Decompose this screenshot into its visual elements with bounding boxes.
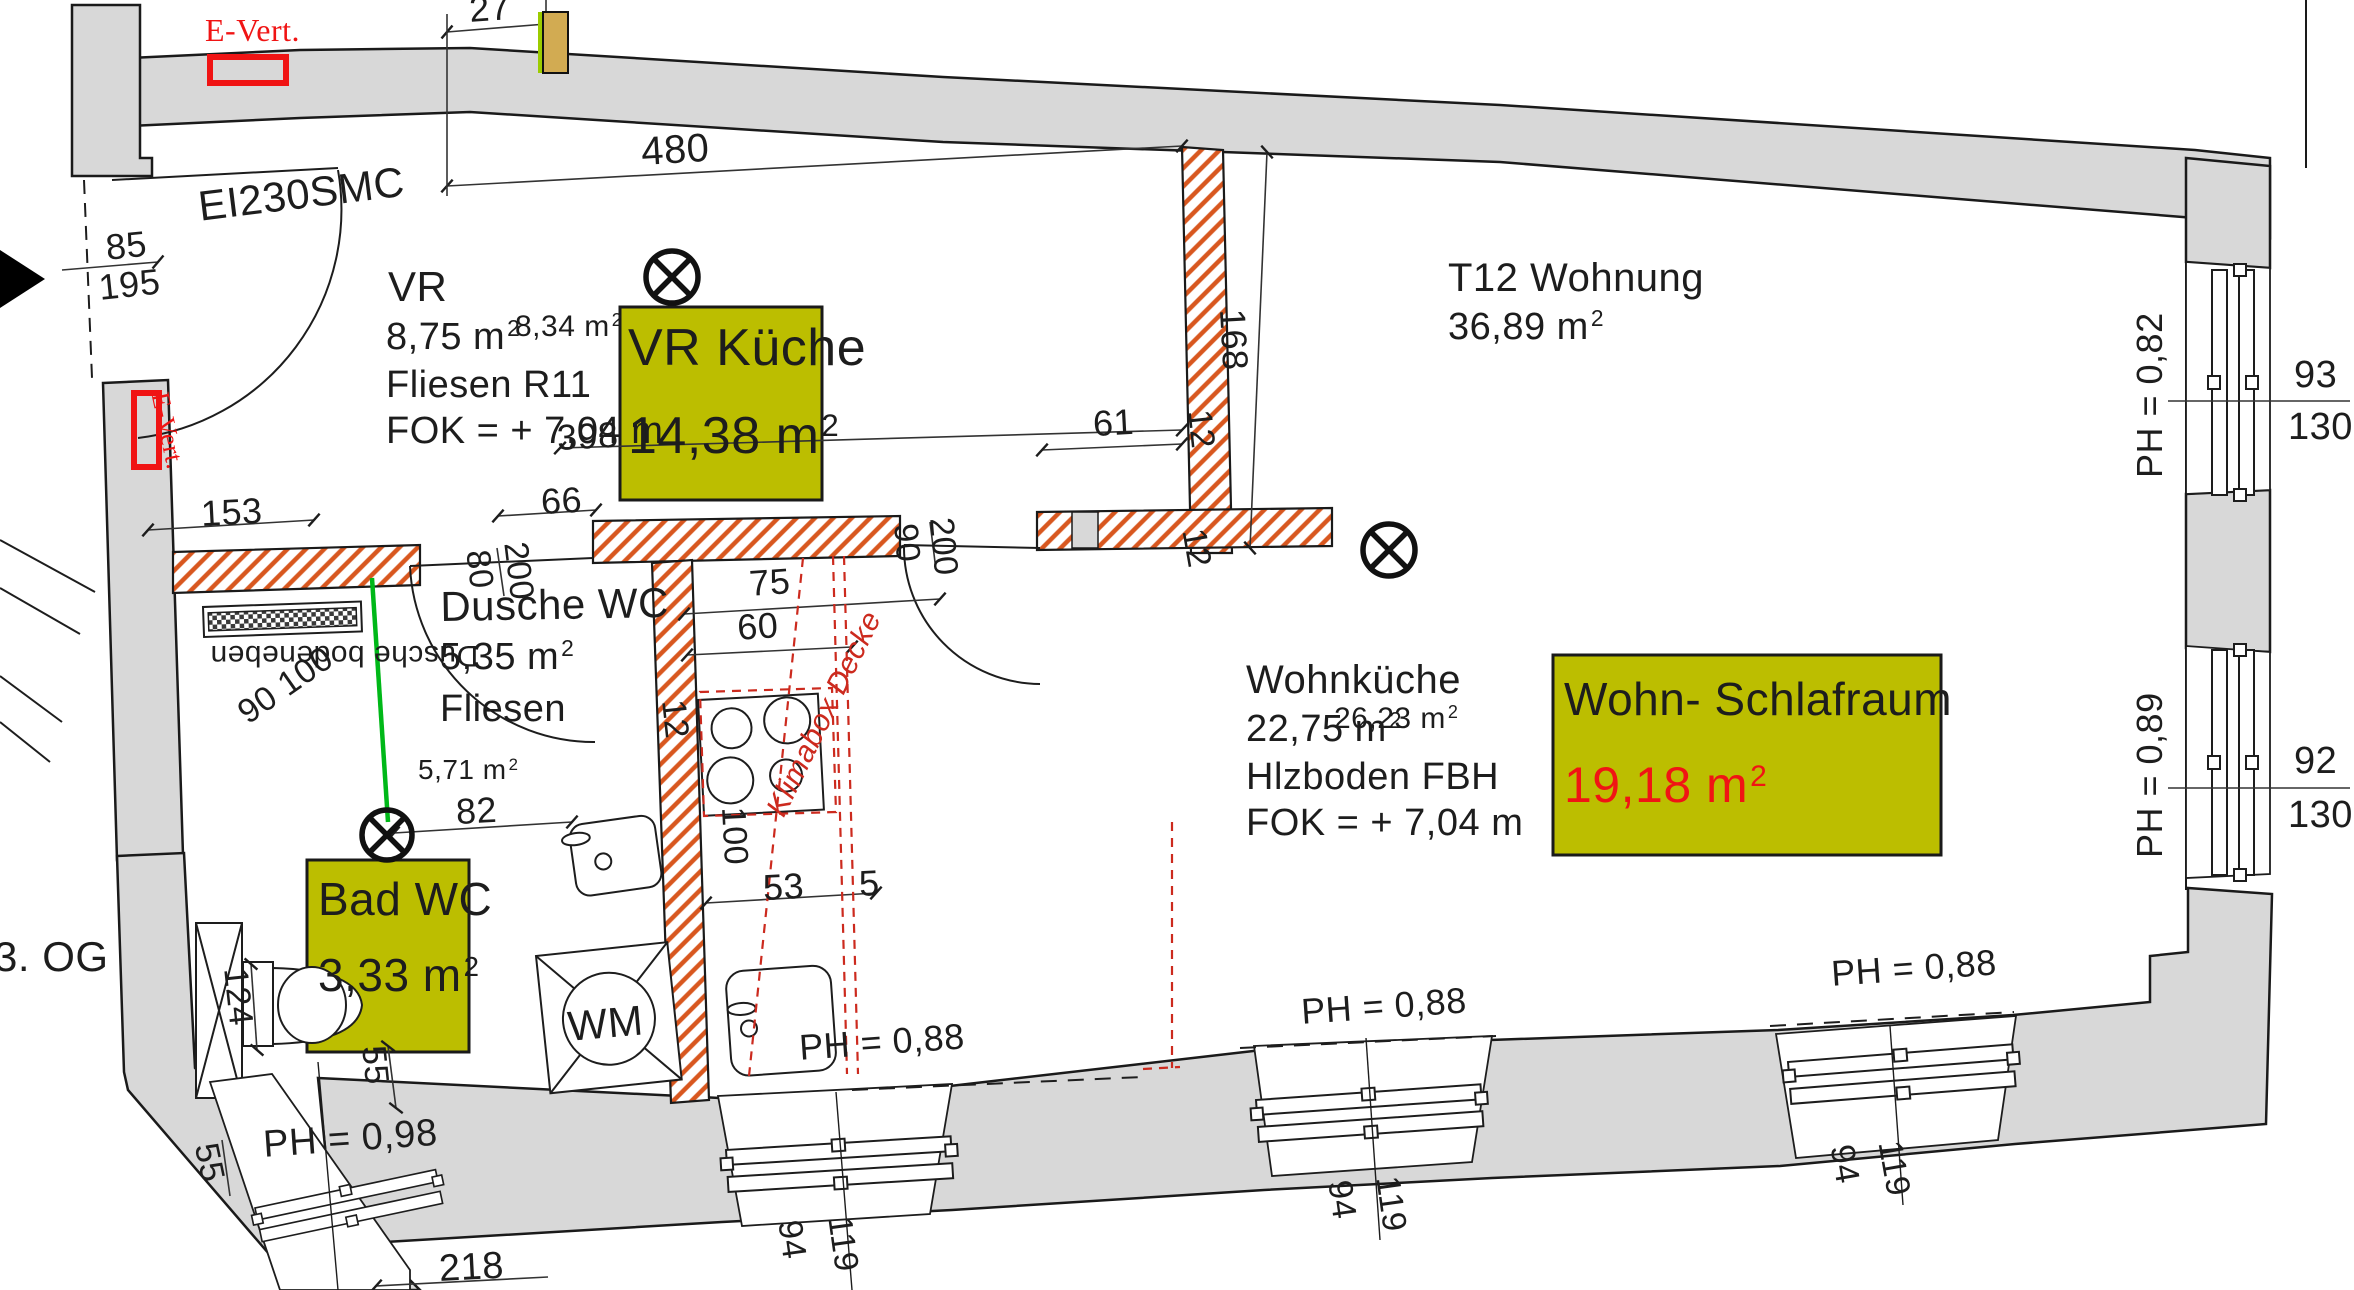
dim-153: 153 (200, 493, 263, 532)
door-arc-wohnkueche (904, 545, 1040, 684)
green-service-line (372, 578, 388, 822)
unit-area-sup: 2 (1591, 305, 1604, 331)
dim-27: 27 (468, 0, 511, 28)
door-opening-dashed (84, 180, 92, 378)
dim-85: 85 (104, 226, 149, 266)
dim-12-a: 12 (1182, 408, 1220, 450)
dim-12-c: 12 (1177, 526, 1217, 570)
room-floor-wohnkueche: Hlzboden FBH (1246, 758, 1499, 796)
room-area-alt-wohnkueche: 26,23 m2 (1334, 704, 1458, 734)
winR2-width: 92 (2294, 742, 2337, 780)
room-area-vr: 8,75 m2 (386, 318, 520, 356)
room-area-dusche-sup: 2 (561, 635, 574, 661)
dim-66: 66 (540, 482, 583, 520)
wall-top-band (88, 48, 2270, 238)
highlight-area-bad-value: 3,33 m (318, 949, 462, 1001)
highlight-label-vr-kueche: VR Küche (628, 322, 866, 374)
lamp-icon-wohnkueche (1363, 524, 1415, 576)
dim-90: 90 (888, 522, 925, 564)
dim-124: 124 (218, 966, 258, 1027)
parapet-right-top: PH = 0,82 (2132, 312, 2168, 478)
highlight-area-bad-sup: 2 (464, 951, 480, 982)
room-label-dusche: Dusche WC (440, 582, 669, 628)
dim-55-a: 55 (356, 1044, 394, 1086)
win1-height: 119 (822, 1214, 863, 1274)
highlight-area-vr-kueche: 14,38 m2 (628, 410, 839, 462)
dim-61: 61 (1092, 404, 1135, 442)
win2-height: 119 (1370, 1174, 1411, 1234)
stair-lines (0, 540, 95, 762)
dim-60: 60 (736, 607, 779, 646)
room-floor-dusche: Fliesen (440, 690, 566, 728)
win1-width: 94 (772, 1218, 811, 1261)
winR1-height: 130 (2288, 408, 2353, 446)
e-vert-label-top: E-Vert. (205, 14, 300, 46)
dim-75: 75 (748, 563, 791, 602)
highlight-area-vr-kueche-value: 14,38 m (628, 407, 819, 465)
room-floor-vr: Fliesen R11 (386, 366, 591, 404)
winR1-width: 93 (2294, 356, 2337, 394)
lamp-icon-vr (646, 251, 698, 303)
dim-398: 398 (556, 417, 619, 456)
winR2-height: 130 (2288, 796, 2353, 834)
existing-pier-inset (1072, 512, 1098, 548)
highlight-label-bad-wc: Bad WC (318, 876, 492, 922)
win3-height: 119 (1873, 1138, 1916, 1199)
new-wall-dusche-top (173, 545, 420, 593)
unit-area-value: 36,89 m (1448, 306, 1589, 348)
north-entry-arrow (0, 250, 45, 308)
dim-168: 168 (1214, 308, 1253, 371)
room-area-alt-vr: 8,34 m2 (515, 312, 622, 342)
dim-12-b: 12 (656, 698, 694, 740)
floor-plan: E-Vert. E-Vert. EI230SMC 85 195 VR 8,75 … (0, 0, 2354, 1290)
win2-width: 94 (1322, 1178, 1361, 1221)
wall-left-pier (72, 5, 152, 176)
niche-marker-tan (543, 12, 568, 73)
shower-channel (203, 601, 362, 636)
wall-right-seg-top (2186, 158, 2270, 268)
room-area-alt-wohnkueche-sup: 2 (1448, 702, 1459, 722)
parapet-right-bottom: PH = 0,89 (2132, 692, 2168, 858)
bad-sub-area-value: 5,71 m (418, 754, 507, 785)
win3-width: 94 (1825, 1142, 1865, 1186)
highlight-label-wohn-schlafraum: Wohn- Schlafraum (1564, 676, 1952, 722)
highlight-area-vr-kueche-sup: 2 (821, 408, 839, 443)
room-area-alt-vr-value: 8,34 m (515, 310, 610, 343)
room-area-alt-vr-sup: 2 (612, 310, 623, 330)
highlight-area-ws-sup: 2 (1750, 760, 1767, 793)
dim-82: 82 (455, 792, 498, 830)
dim-100: 100 (716, 806, 753, 866)
room-level-wohnkueche: FOK = + 7,04 m (1246, 804, 1523, 842)
dim-5: 5 (858, 865, 880, 902)
new-wall-corridor-top (593, 516, 900, 563)
dim-55-b: 55 (189, 1140, 230, 1185)
highlight-area-ws-value: 19,18 m (1564, 757, 1748, 813)
bad-sub-area-sup: 2 (509, 755, 519, 774)
room-area-alt-wohnkueche-value: 26,23 m (1334, 702, 1446, 735)
room-level-vr: FOK = + 7,04 m (386, 412, 663, 450)
room-area-vr-value: 8,75 m (386, 316, 505, 358)
highlight-area-wohn-schlafraum: 19,18 m2 (1564, 760, 1767, 810)
washer-label: WM (566, 999, 645, 1047)
room-label-vr: VR (388, 266, 447, 308)
highlight-area-bad-wc: 3,33 m2 (318, 952, 480, 998)
dim-218: 218 (438, 1247, 505, 1288)
wall-right-seg-mid (2186, 490, 2270, 652)
unit-area: 36,89 m2 (1448, 308, 1604, 346)
bad-sub-area: 5,71 m2 (418, 756, 518, 784)
dim-195: 195 (97, 264, 162, 306)
dim-200-b: 200 (924, 516, 963, 577)
dim-53: 53 (762, 868, 805, 906)
room-label-wohnkueche: Wohnküche (1246, 660, 1461, 700)
dim-480: 480 (640, 128, 711, 172)
shower-note: Dusche bodeneben (210, 640, 478, 670)
washbasin (560, 814, 663, 898)
unit-name: T12 Wohnung (1448, 258, 1704, 298)
floor-label: 3. OG (0, 936, 109, 978)
